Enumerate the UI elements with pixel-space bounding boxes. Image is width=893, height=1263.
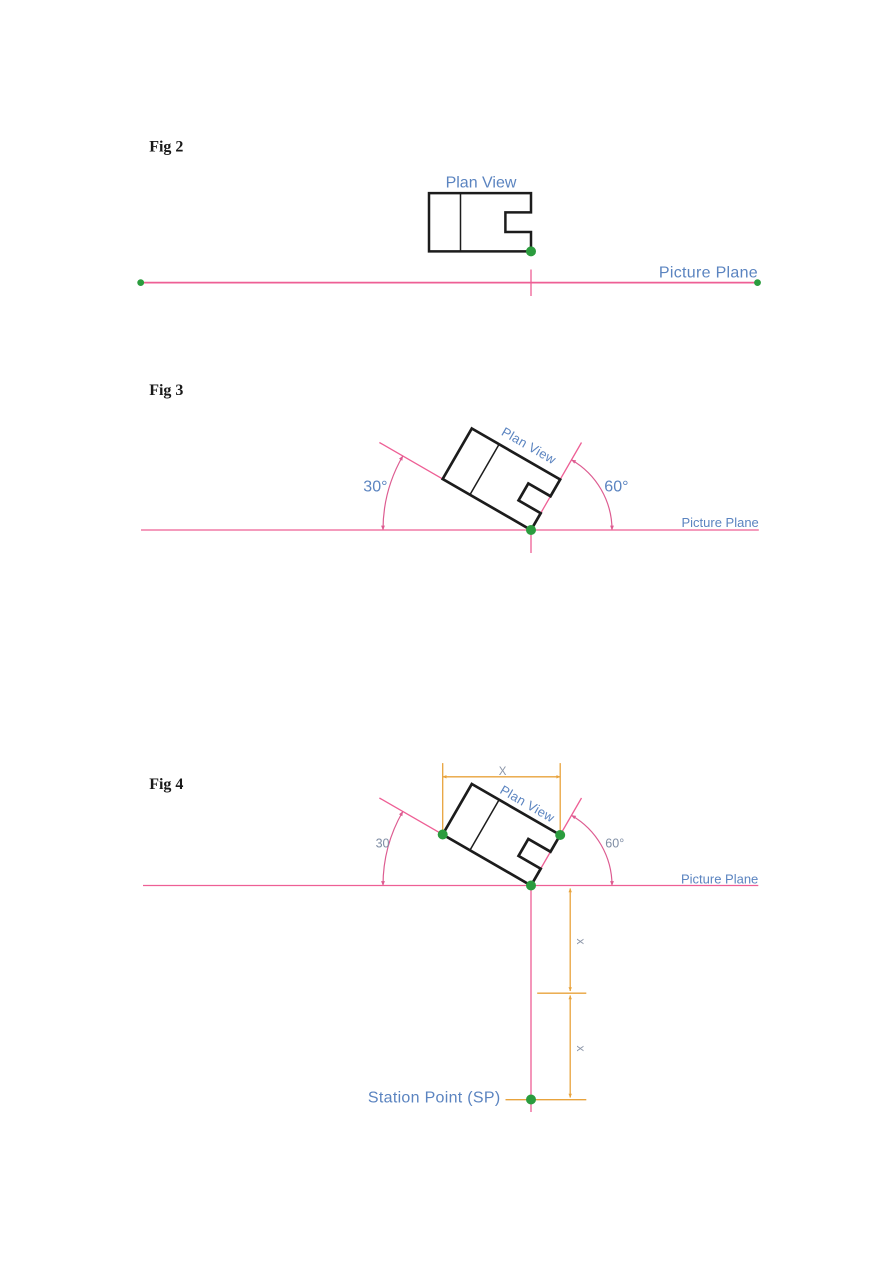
svg-text:Fig 4: Fig 4 — [149, 776, 183, 793]
svg-text:X: X — [499, 766, 507, 778]
svg-text:Picture Plane: Picture Plane — [659, 265, 758, 282]
svg-text:Fig 3: Fig 3 — [149, 382, 183, 399]
svg-text:Picture Plane: Picture Plane — [681, 871, 758, 886]
svg-text:60°: 60° — [604, 478, 628, 495]
svg-text:30°: 30° — [363, 478, 387, 495]
svg-text:x: x — [574, 1046, 588, 1052]
svg-text:x: x — [574, 939, 588, 945]
svg-text:Fig 2: Fig 2 — [149, 139, 183, 156]
svg-text:Picture Plane: Picture Plane — [681, 515, 758, 530]
svg-text:Station Point (SP): Station Point (SP) — [368, 1089, 501, 1106]
svg-text:Plan View: Plan View — [446, 175, 517, 192]
svg-text:60°: 60° — [605, 837, 624, 851]
svg-text:30: 30 — [376, 837, 390, 851]
